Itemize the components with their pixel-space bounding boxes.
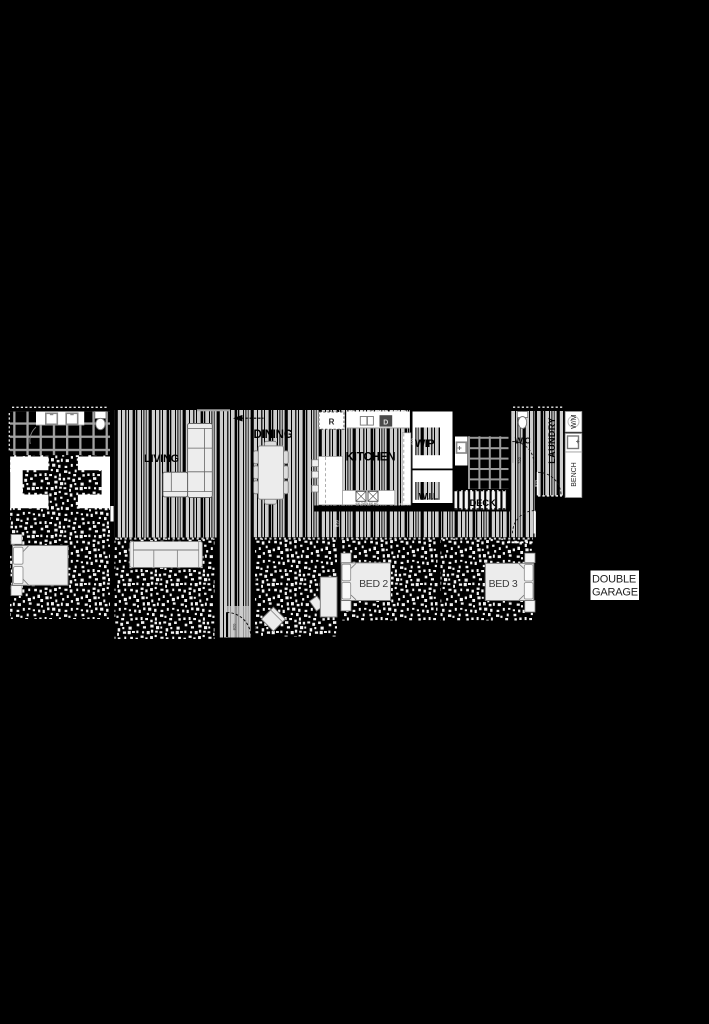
svg-text:W/C: W/C bbox=[515, 436, 531, 446]
svg-text:900 SGD: 900 SGD bbox=[398, 502, 409, 506]
svg-text:BED 2: BED 2 bbox=[359, 578, 388, 590]
svg-text:R: R bbox=[329, 418, 335, 427]
svg-text:BENCH: BENCH bbox=[571, 462, 578, 487]
svg-text:DECK: DECK bbox=[469, 498, 495, 509]
svg-text:DINING: DINING bbox=[253, 429, 292, 441]
svg-text:820: 820 bbox=[534, 479, 539, 486]
svg-text:KITCHEN: KITCHEN bbox=[346, 452, 396, 464]
svg-text:820: 820 bbox=[232, 623, 237, 630]
svg-text:DOUBLE: DOUBLE bbox=[592, 574, 636, 586]
svg-text:W/M: W/M bbox=[571, 414, 578, 429]
svg-text:LIVING: LIVING bbox=[144, 453, 179, 465]
svg-text:WIP: WIP bbox=[415, 438, 434, 450]
svg-text:720: 720 bbox=[517, 456, 522, 463]
svg-text:D: D bbox=[383, 419, 388, 426]
svg-text:BED 3: BED 3 bbox=[489, 578, 518, 590]
svg-text:600 OVEN 600 WO: 600 OVEN 600 WO bbox=[356, 501, 379, 505]
svg-text:GARAGE: GARAGE bbox=[592, 587, 638, 599]
svg-text:820: 820 bbox=[410, 437, 415, 444]
svg-text:W.I.L: W.I.L bbox=[419, 492, 439, 502]
svg-text:LAUNDRY: LAUNDRY bbox=[547, 417, 557, 463]
svg-text:820: 820 bbox=[335, 519, 340, 527]
